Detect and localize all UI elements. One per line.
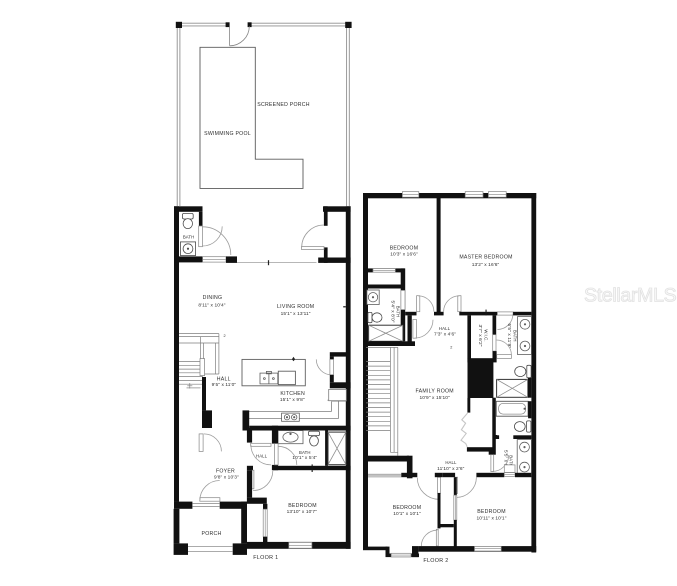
svg-text:BEDROOM: BEDROOM xyxy=(288,503,317,509)
svg-text:15'1" x 13'11": 15'1" x 13'11" xyxy=(281,311,311,317)
svg-text:5'5" x 11'9": 5'5" x 11'9" xyxy=(506,324,512,349)
svg-text:BATH: BATH xyxy=(299,450,311,455)
svg-text:PORCH: PORCH xyxy=(202,531,222,537)
svg-text:SWIMMING POOL: SWIMMING POOL xyxy=(204,131,251,137)
svg-text:SCREENED PORCH: SCREENED PORCH xyxy=(257,102,310,108)
svg-text:10'3" x 16'6": 10'3" x 16'6" xyxy=(390,252,418,258)
svg-text:HALL: HALL xyxy=(445,460,457,465)
svg-text:3'7" x 6'2": 3'7" x 6'2" xyxy=(477,324,483,346)
svg-text:BATH: BATH xyxy=(183,234,195,239)
svg-text:9'8" x 10'3": 9'8" x 10'3" xyxy=(214,475,239,481)
svg-text:7'3" x 4'6": 7'3" x 4'6" xyxy=(434,332,456,338)
svg-text:StellarMLS: StellarMLS xyxy=(584,285,677,307)
svg-text:10'1" x 10'1": 10'1" x 10'1" xyxy=(393,511,421,517)
svg-text:2: 2 xyxy=(450,346,452,350)
svg-text:FLOOR 1: FLOOR 1 xyxy=(253,555,278,561)
svg-text:LIVING ROOM: LIVING ROOM xyxy=(277,304,314,310)
svg-text:13'10" x 10'7": 13'10" x 10'7" xyxy=(287,509,318,515)
svg-text:2: 2 xyxy=(223,334,225,338)
svg-text:FOYER: FOYER xyxy=(216,468,235,474)
svg-text:FAMILY ROOM: FAMILY ROOM xyxy=(416,389,454,395)
svg-text:HALL: HALL xyxy=(217,376,231,382)
svg-text:11'10" x 2'6": 11'10" x 2'6" xyxy=(437,466,464,472)
svg-text:BATH: BATH xyxy=(396,306,401,318)
svg-text:BEDROOM: BEDROOM xyxy=(477,509,506,515)
svg-text:10'11" x 10'1": 10'11" x 10'1" xyxy=(476,515,506,521)
svg-text:FLOOR 2: FLOOR 2 xyxy=(423,558,448,564)
svg-text:KITCHEN: KITCHEN xyxy=(280,391,305,397)
svg-text:13'2" x 16'6": 13'2" x 16'6" xyxy=(472,262,500,268)
svg-text:BEDROOM: BEDROOM xyxy=(393,505,422,511)
svg-text:15'1" x 9'8": 15'1" x 9'8" xyxy=(280,397,305,403)
svg-text:9'5" x 11'0": 9'5" x 11'0" xyxy=(212,382,237,388)
svg-text:10'9" x 15'10": 10'9" x 15'10" xyxy=(420,395,451,401)
svg-text:BATH: BATH xyxy=(512,330,517,342)
svg-text:MASTER BEDROOM: MASTER BEDROOM xyxy=(459,255,512,261)
svg-text:W.I.C.: W.I.C. xyxy=(483,329,488,341)
svg-text:HALL: HALL xyxy=(439,326,451,331)
svg-text:BEDROOM: BEDROOM xyxy=(390,246,419,252)
svg-text:HALL: HALL xyxy=(256,453,268,458)
svg-text:5'4" x 8'0": 5'4" x 8'0" xyxy=(389,300,395,322)
svg-text:DINING: DINING xyxy=(203,295,223,301)
svg-text:8'11" x 10'4": 8'11" x 10'4" xyxy=(198,303,225,309)
